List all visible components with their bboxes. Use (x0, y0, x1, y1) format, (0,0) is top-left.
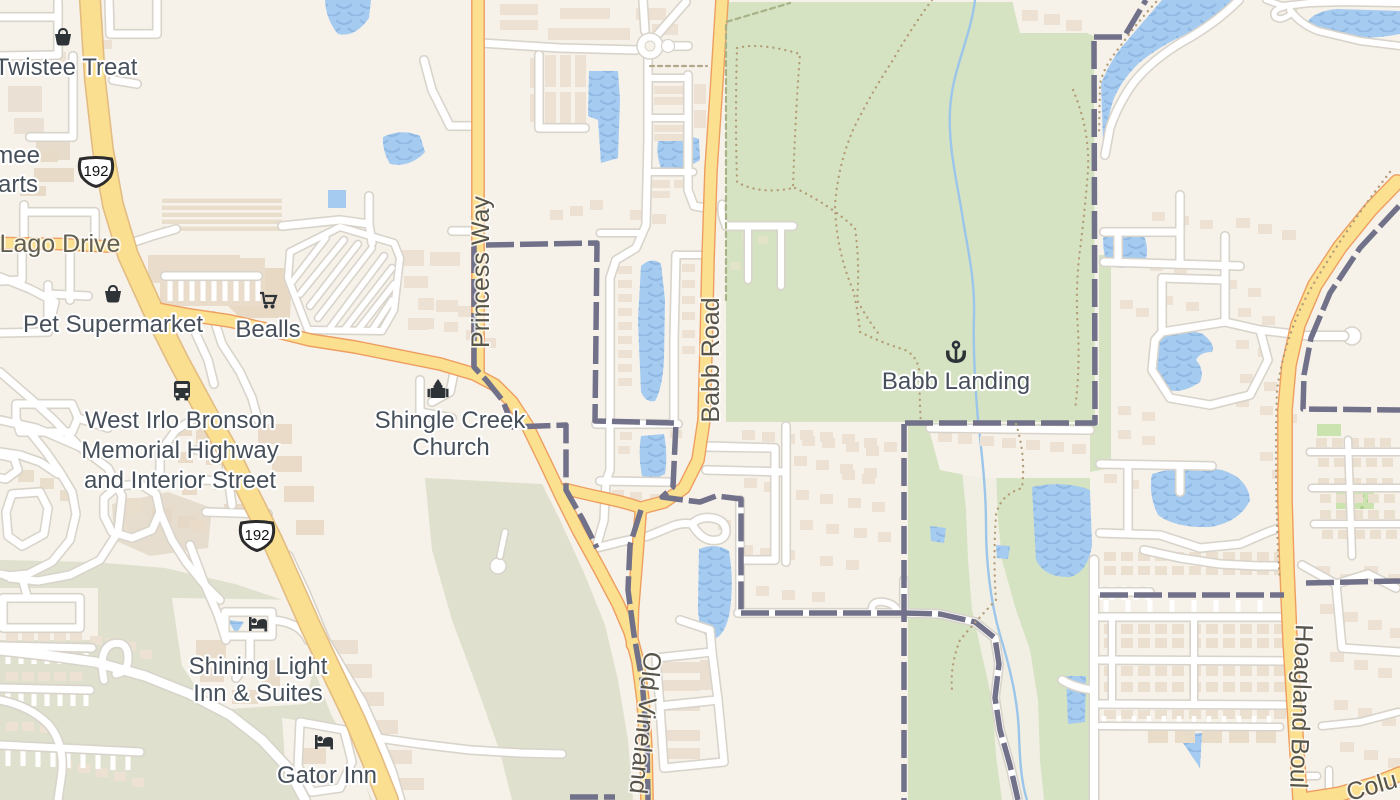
svg-text:Kissimmee: Kissimmee (0, 142, 40, 169)
svg-text:Lago Drive: Lago Drive (0, 230, 120, 258)
svg-text:192: 192 (244, 527, 269, 544)
svg-text:Babb Road: Babb Road (697, 297, 725, 422)
svg-text:Bealls: Bealls (235, 316, 300, 343)
svg-text:Gator Inn: Gator Inn (277, 762, 377, 789)
svg-text:192: 192 (83, 163, 108, 180)
svg-text:West Irlo Bronson: West Irlo Bronson (85, 407, 275, 434)
svg-text:Memorial Highway: Memorial Highway (81, 437, 278, 464)
svg-text:Go-Karts: Go-Karts (0, 171, 38, 198)
svg-text:Shining Light: Shining Light (189, 653, 328, 680)
svg-text:and Interior Street: and Interior Street (84, 467, 276, 494)
svg-text:Inn & Suites: Inn & Suites (193, 680, 322, 707)
svg-text:Pet Supermarket: Pet Supermarket (23, 311, 203, 338)
svg-text:Church: Church (412, 434, 489, 461)
svg-text:Hoagland Boul: Hoagland Boul (1284, 624, 1318, 789)
svg-text:Shingle Creek: Shingle Creek (375, 407, 527, 434)
svg-text:Princess Way: Princess Way (467, 196, 495, 348)
svg-text:Twistee Treat: Twistee Treat (0, 54, 138, 81)
svg-text:Babb Landing: Babb Landing (882, 368, 1030, 395)
